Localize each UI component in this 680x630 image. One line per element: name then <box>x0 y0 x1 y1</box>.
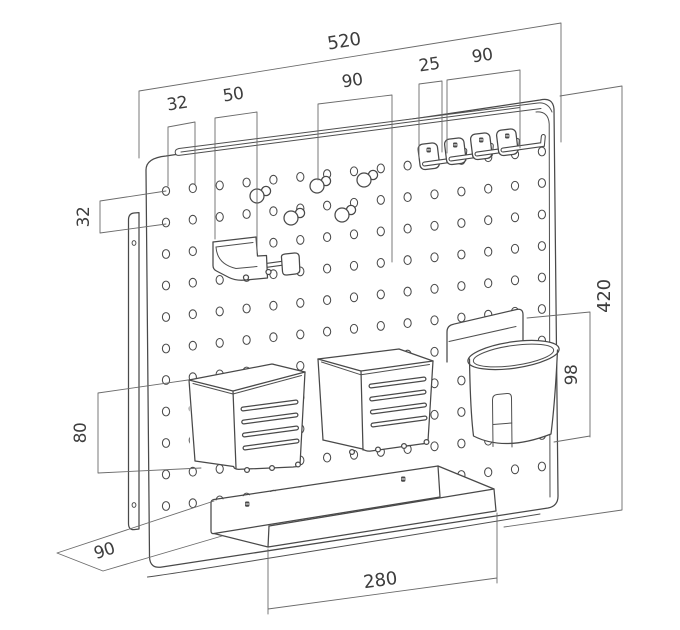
shelf-screw <box>245 502 249 507</box>
wall-bracket-left <box>129 213 140 530</box>
dimension-label-basket-height: 80 <box>71 423 91 444</box>
dimension-label-hole-offset: 32 <box>165 93 189 116</box>
dimension-label-cup-height: 98 <box>562 365 582 386</box>
dimension-label-tool-holder-width: 50 <box>221 84 245 107</box>
dimension-label-hook-span: 90 <box>471 45 494 68</box>
storage-basket-left <box>189 364 305 472</box>
dimension-label-side-depth: 90 <box>91 539 117 564</box>
dimension-label-overall-height: 420 <box>594 279 615 313</box>
shelf-screw <box>401 477 405 482</box>
storage-basket-right <box>318 349 433 454</box>
dimension-label-hook-spacing: 25 <box>418 54 441 77</box>
dimension-label-overall-width: 520 <box>326 29 363 55</box>
technical-drawing-page: 520 32 50 90 25 90 32 420 <box>0 0 680 630</box>
dimension-label-shelf-length: 280 <box>362 568 398 593</box>
dimension-label-peg-span: 90 <box>341 70 364 93</box>
dimension-label-row-spacing: 32 <box>74 207 94 228</box>
pegboard-dimension-drawing: 520 32 50 90 25 90 32 420 <box>0 0 680 630</box>
